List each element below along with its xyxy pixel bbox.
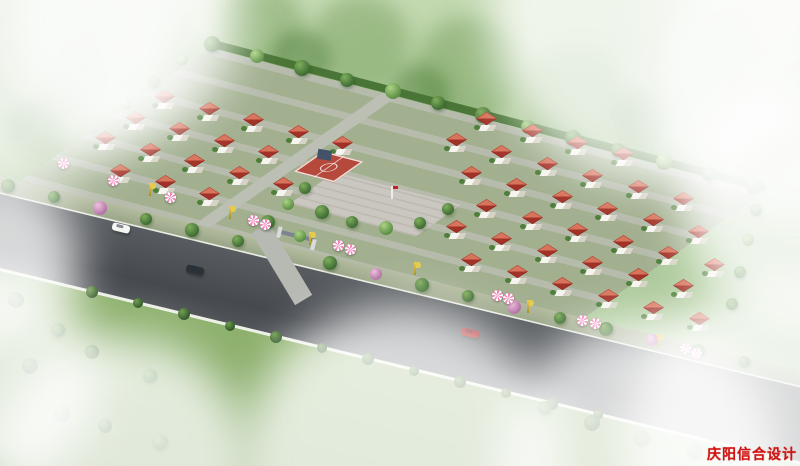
banner-flag [529,300,534,306]
car-windshield [116,224,124,229]
pink-parasol [503,293,514,304]
villa-red-roof [552,190,573,203]
pink-parasol [345,244,356,255]
villa-house [582,256,604,275]
villa-house [506,178,528,197]
banner-pole [229,206,231,219]
tree [270,331,282,343]
villa-red-roof [461,253,482,266]
banner-pole [309,232,311,245]
villa-red-roof [628,268,649,281]
tree [299,182,311,194]
villa-red-roof [537,157,558,170]
banner-flag [311,232,316,238]
villa-wall [555,290,573,296]
pink-parasol [165,192,176,203]
villa-wall [464,179,482,185]
villa-red-roof [228,166,249,179]
pink-parasol [248,215,259,226]
tree [250,49,264,63]
villa-red-roof [612,235,633,248]
villa-red-roof [643,301,664,314]
villa-house [461,166,483,185]
pink-parasol [333,240,344,251]
villa-wall [600,302,618,308]
villa-red-roof [446,133,467,146]
villa-wall [216,147,234,153]
villa-wall [600,215,618,221]
villa-house [184,154,206,173]
villa-house [491,232,513,251]
banner-pole [414,262,416,275]
villa-wall [539,257,557,263]
villa-red-roof [491,145,512,158]
villa-house [288,125,310,144]
villa-wall [646,314,664,320]
villa-house [537,244,559,263]
villa-red-roof [476,199,497,212]
villa-wall [676,292,694,298]
villa-house [229,166,251,185]
villa-red-roof [506,265,527,278]
villa-house [658,246,680,265]
villa-red-roof [184,154,205,167]
villa-house [273,177,295,196]
banner-pole [527,300,529,313]
villa-house [155,175,177,194]
villa-wall [464,266,482,272]
villa-wall [509,278,527,284]
villa-red-roof [446,220,467,233]
villa-wall [494,245,512,251]
villa-house [552,277,574,296]
tree [379,221,393,235]
tree [323,256,337,270]
villa-red-roof [537,244,558,257]
villa-house [258,145,280,164]
villa-wall [585,269,603,275]
tree [294,230,306,242]
villa-red-roof [597,289,618,302]
villa-wall [570,236,588,242]
villa-house [199,187,221,206]
villa-wall [585,182,603,188]
villa-house [522,211,544,230]
tree [385,83,401,99]
tree [294,60,310,76]
villa-red-roof [213,134,234,147]
villa-red-roof [673,279,694,292]
villa-house [214,134,236,153]
tree [431,96,445,110]
villa-house [643,213,665,232]
tree [225,321,235,331]
villa-wall [142,156,160,162]
villa-wall [479,125,497,131]
flowering-shrub [370,268,382,280]
tree [232,235,244,247]
villa-house [140,143,162,162]
villa-house [476,199,498,218]
villa-wall [246,126,264,132]
villa-red-roof [506,178,527,191]
villa-red-roof [199,187,220,200]
villa-house [491,145,513,164]
villa-red-roof [567,223,588,236]
tree [133,298,143,308]
villa-wall [524,224,542,230]
villa-house [643,301,665,320]
pink-parasol [492,290,503,301]
villa-house [597,202,619,221]
villa-house [598,289,620,308]
villa-house [552,190,574,209]
villa-house [446,220,468,239]
villa-red-roof [476,112,497,125]
villa-red-roof [552,277,573,290]
villa-wall [187,167,205,173]
villa-wall [448,146,466,152]
villa-house [537,157,559,176]
watermark-text: 庆阳信合设计 [707,444,797,464]
villa-house [461,253,483,272]
villa-red-roof [597,202,618,215]
villa-house [332,136,354,155]
banner-flag [151,183,156,189]
villa-wall [479,212,497,218]
banner-pole [149,183,151,196]
villa-red-roof [139,143,160,156]
pink-parasol [577,315,588,326]
villa-house [673,279,695,298]
villa-wall [539,170,557,176]
villa-wall [201,115,219,121]
tree [442,203,454,215]
villa-red-roof [658,246,679,259]
tree [282,198,294,210]
villa-house [628,268,650,287]
villa-house [446,133,468,152]
tree [415,278,429,292]
villa-wall [448,233,466,239]
villa-house [243,113,265,132]
villa-red-roof [287,124,308,137]
villa-red-roof [258,145,279,158]
villa-wall [630,193,648,199]
tree [185,223,199,237]
tree [140,213,152,225]
villa-wall [661,259,679,265]
tree [554,312,566,324]
villa-wall [261,158,279,164]
flowering-shrub [93,201,107,215]
villa-wall [172,135,190,141]
car-windshield [190,266,198,271]
tree [340,73,354,87]
villa-wall [646,226,664,232]
villa-red-roof [332,136,353,149]
villa-red-roof [582,256,603,269]
tree [315,205,329,219]
tree [346,216,358,228]
villa-wall [231,179,249,185]
tree [414,217,426,229]
villa-wall [630,281,648,287]
villa-red-roof [521,211,542,224]
villa-red-roof [491,232,512,245]
banner-flag [231,206,236,212]
villa-wall [555,203,573,209]
villa-wall [202,200,220,206]
school-entrance [317,149,332,161]
villa-wall [290,138,308,144]
villa-wall [494,158,512,164]
villa-red-roof [461,166,482,179]
villa-house [476,112,498,131]
villa-house [567,223,589,242]
banner-flag [416,262,421,268]
flagpole [391,186,393,199]
villa-house [507,265,529,284]
aerial-rendering: 庆阳信合设计 [0,0,800,466]
villa-red-roof [643,213,664,226]
pink-parasol [108,175,119,186]
tree [86,286,98,298]
villa-wall [276,190,294,196]
tree [178,308,190,320]
villa-red-roof [154,175,175,188]
villa-wall [615,248,633,254]
villa-red-roof [273,177,294,190]
tree [462,290,474,302]
villa-red-roof [243,113,264,126]
villa-wall [509,191,527,197]
villa-house [613,235,635,254]
flag [393,186,398,189]
pink-parasol [260,219,271,230]
villa-wall [524,137,542,143]
